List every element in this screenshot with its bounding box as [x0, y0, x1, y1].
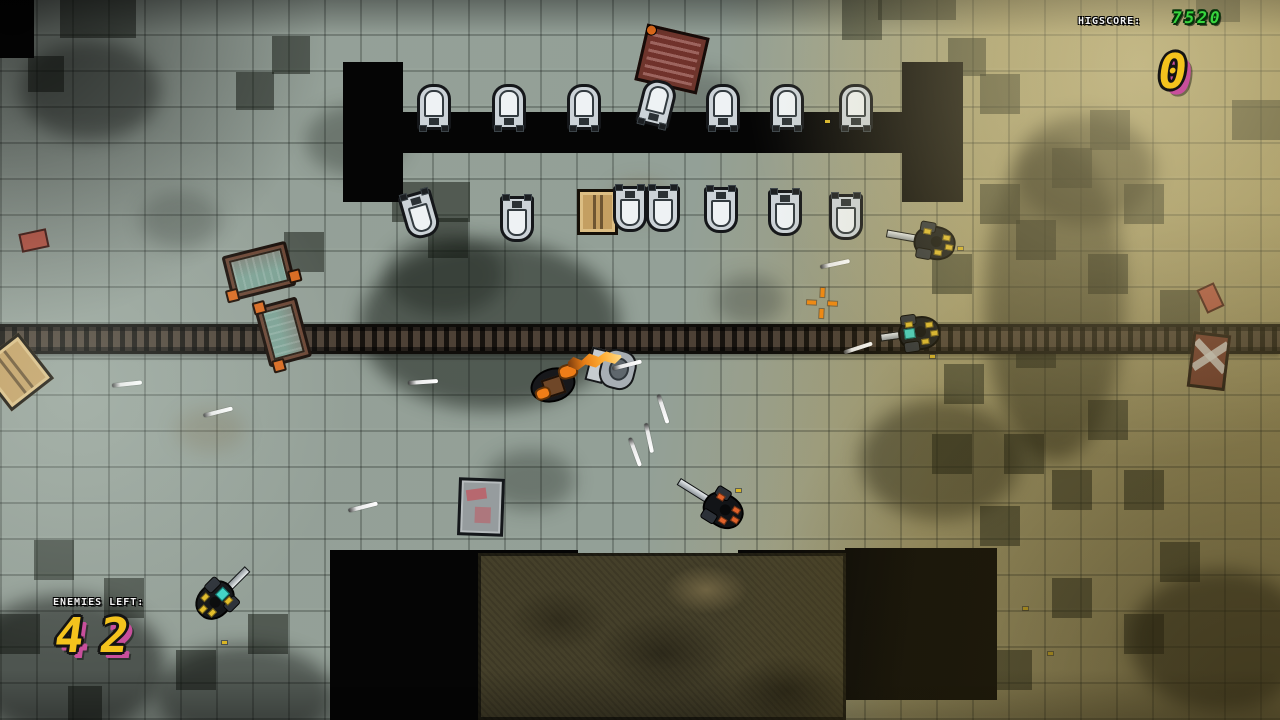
urinal-fixture [839, 84, 873, 130]
urinal-drain [782, 118, 792, 125]
urinal-fixture [500, 196, 534, 242]
wall-block [0, 0, 34, 58]
urinal-drain [851, 118, 861, 125]
urinal-fixture [829, 194, 863, 240]
urinal-rim [846, 90, 866, 117]
shell-casing [736, 489, 741, 492]
urinal-drain [512, 201, 522, 208]
enemy-visor [904, 328, 916, 339]
shell-casing [825, 120, 830, 123]
dark-floor-tile [1052, 470, 1092, 510]
urinal-bolt [708, 125, 716, 132]
urinal-drain [780, 195, 790, 202]
crosshair-tick [828, 301, 837, 305]
grime-stain [1015, 115, 1155, 225]
highscore-value: 7520 [1170, 8, 1224, 27]
enemy-accent [921, 338, 930, 345]
urinal-bolt [648, 184, 656, 191]
enemy-accent [923, 228, 932, 235]
urinal-bolt [792, 188, 800, 195]
urinal-rim [713, 90, 733, 117]
urinal-drain [718, 118, 728, 125]
urinal-drain [429, 118, 439, 125]
dark-floor-tile [34, 540, 74, 580]
crosshair-tick [807, 300, 816, 304]
highscore-label: HIGSCORE: [1078, 16, 1141, 27]
urinal-bolt [441, 125, 449, 132]
urinal-bolt [569, 125, 577, 132]
urinal-fixture [492, 84, 526, 130]
urinal-rim [574, 90, 594, 117]
urinal-bolt [831, 192, 839, 199]
dark-floor-tile [980, 74, 1020, 114]
urinal-drain [579, 118, 589, 125]
urinal-bolt [524, 194, 532, 201]
grime-stain [385, 235, 505, 315]
urinal-bolt [615, 184, 623, 191]
urinal-fixture [770, 84, 804, 130]
enemy-accent [942, 234, 951, 241]
shell-casing [930, 355, 935, 358]
wall-block [330, 550, 478, 720]
crosshair-tick [820, 288, 824, 297]
urinal-bolt [516, 125, 524, 132]
enemy-accent [930, 330, 939, 337]
urinal-fixture [417, 84, 451, 130]
dark-floor-tile [944, 364, 984, 404]
wall-block [845, 548, 997, 700]
urinal-rim [507, 209, 527, 236]
urinal-bolt [670, 184, 678, 191]
urinal-drain [658, 191, 668, 198]
railway-track [0, 324, 1280, 354]
crate-metal [457, 477, 505, 537]
urinal-bolt [502, 194, 510, 201]
urinal-fixture [613, 186, 647, 232]
enemy-accent [905, 321, 914, 328]
barrel-red [1187, 331, 1232, 391]
dark-floor-tile [1124, 470, 1164, 510]
grime-stain [715, 275, 785, 325]
graffiti-smear [466, 487, 487, 501]
urinal-rim [653, 199, 673, 226]
urinal-fixture [704, 187, 738, 233]
urinal-fixture [567, 84, 601, 130]
urinal-fixture [706, 84, 740, 130]
dark-floor-tile [272, 36, 310, 74]
dark-floor-tile [980, 506, 1020, 546]
enemy-accent [945, 244, 954, 251]
urinal-bolt [770, 188, 778, 195]
dark-floor-tile [1232, 100, 1280, 140]
dirt-pit [478, 553, 846, 720]
urinal-bolt [591, 125, 599, 132]
urinal-drain [841, 199, 851, 206]
enemies-left-value: 42 [51, 608, 149, 664]
grime-stain [20, 40, 160, 140]
urinal-bolt [706, 185, 714, 192]
enemy-accent [933, 249, 942, 256]
urinal-bolt [772, 125, 780, 132]
urinal-fixture [768, 190, 802, 236]
player-character [528, 356, 624, 402]
shell-casing [1023, 607, 1028, 610]
game-viewport[interactable]: HIGSCORE: 7520 0 ENEMIES LEFT: 42 [0, 0, 1280, 720]
urinal-bolt [728, 185, 736, 192]
urinal-bolt [863, 125, 871, 132]
urinal-drain [625, 191, 635, 198]
crosshair-cursor [804, 285, 840, 321]
urinal-rim [499, 90, 519, 117]
dark-floor-tile [60, 0, 136, 38]
urinal-drain [504, 118, 514, 125]
urinal-bolt [494, 125, 502, 132]
crate-wood [577, 189, 618, 235]
grime-stain [860, 400, 1020, 520]
dark-floor-tile [1052, 578, 1092, 618]
dark-floor-tile [992, 650, 1032, 690]
urinal-rim [775, 203, 795, 230]
urinal-rim [424, 90, 444, 117]
grime-stain [140, 192, 220, 248]
dark-floor-tile [878, 0, 956, 20]
urinal-rim [836, 207, 856, 234]
enemy-shoulder [903, 340, 920, 353]
urinal-rim [711, 200, 731, 227]
shell-casing [1048, 652, 1053, 655]
urinal-bolt [853, 192, 861, 199]
enemies-left-label: ENEMIES LEFT: [53, 597, 144, 608]
urinal-bolt [730, 125, 738, 132]
urinal-bolt [841, 125, 849, 132]
urinal-rim [620, 199, 640, 226]
dark-floor-tile [842, 0, 882, 40]
urinal-bolt [637, 184, 645, 191]
shell-casing [958, 247, 963, 250]
urinal-bolt [794, 125, 802, 132]
graffiti-smear [474, 507, 491, 524]
dark-floor-tile [236, 72, 274, 110]
enemy-accent [925, 321, 934, 328]
crate-plank [593, 195, 596, 229]
urinal-rim [777, 90, 797, 117]
crate-plank [600, 195, 603, 229]
urinal-bolt [419, 125, 427, 132]
crosshair-tick [819, 309, 823, 318]
shell-casing [222, 641, 227, 644]
urinal-drain [716, 192, 726, 199]
urinal-fixture [646, 186, 680, 232]
